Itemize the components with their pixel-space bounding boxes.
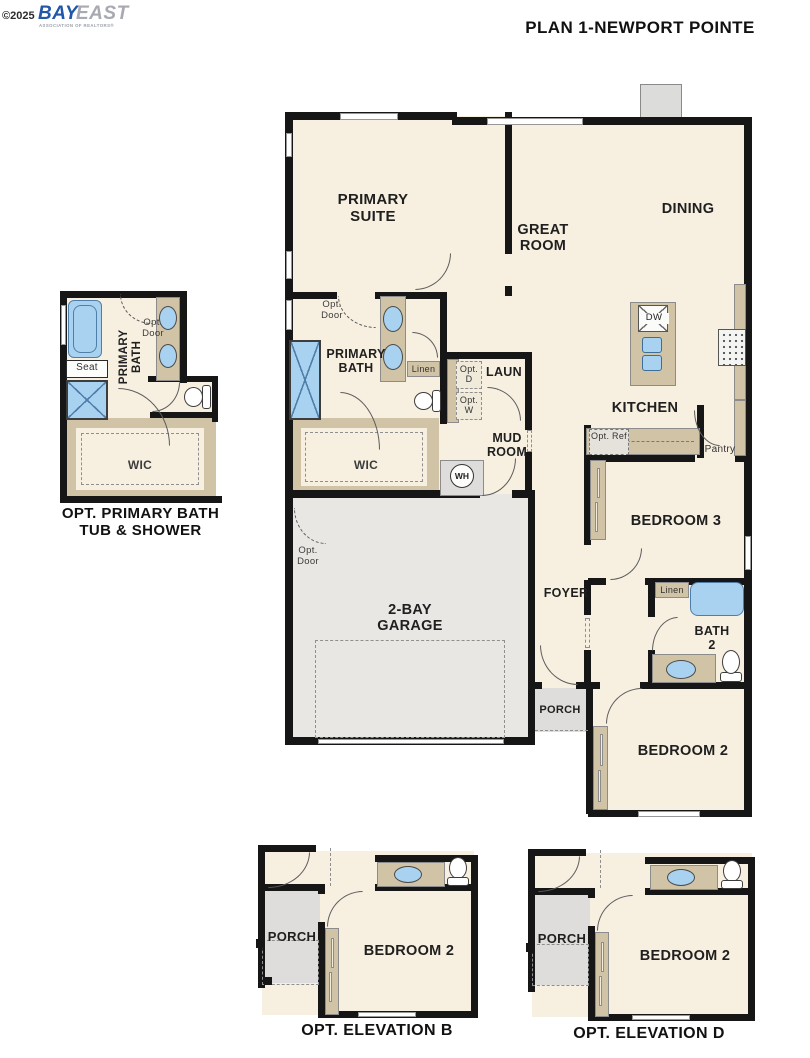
- linen2-label: Linen: [655, 585, 689, 595]
- elevb-porch-label: PORCH: [263, 930, 321, 945]
- kitchen-sink-1: [642, 337, 662, 353]
- window-suite-left-1: [286, 133, 292, 157]
- wall-kitchen-bed3-r: [735, 455, 752, 462]
- wall-bath2-left-a: [648, 583, 655, 617]
- bedroom2-label: BEDROOM 2: [633, 743, 733, 759]
- detail-shower: [66, 380, 108, 420]
- detail-opt-door-label: Opt. Door: [136, 318, 170, 339]
- brand-tagline: ASSOCIATION OF REALTORS®: [39, 24, 114, 28]
- bath2-tub: [690, 582, 744, 616]
- laun-label: LAUN: [480, 365, 528, 379]
- bedroom3-label: BEDROOM 3: [626, 513, 726, 529]
- window-suite-top: [340, 113, 398, 120]
- shower: [289, 340, 321, 420]
- kitchen-sink-2: [642, 355, 662, 371]
- detail-sink-2: [159, 344, 177, 368]
- opt-washer-label: Opt. W: [456, 395, 482, 415]
- elevd-wall-bed-stub: [588, 888, 595, 898]
- elevd-wall-right: [748, 857, 755, 1021]
- elevd-caption: OPT. ELEVATION D: [538, 1025, 760, 1043]
- garage-parking-dashed: [315, 640, 505, 738]
- wall-bath2-bed2-r: [640, 682, 752, 689]
- bath2-label: BATH 2: [692, 624, 732, 652]
- window-bath-left: [286, 300, 292, 330]
- elevb-sink: [394, 866, 422, 883]
- brand-bay: BAY: [38, 3, 78, 25]
- elevd-cutline: [600, 850, 602, 888]
- elevb-wall-top: [258, 845, 316, 852]
- bath2-sink: [666, 660, 696, 679]
- elevd-sink: [667, 869, 695, 886]
- floorplan-page: ©2025 BAY EAST ASSOCIATION OF REALTORS® …: [0, 0, 810, 1058]
- chimney: [640, 84, 682, 120]
- elevd-bedroom2-label: BEDROOM 2: [634, 948, 736, 964]
- elevd-wall-top: [528, 849, 586, 856]
- great-room-label: GREAT ROOM: [512, 222, 574, 254]
- wall-laun-right: [525, 352, 532, 430]
- elevb-window: [358, 1012, 416, 1017]
- garage-opt-door-label: Opt. Door: [290, 546, 326, 567]
- wic-label: WIC: [342, 459, 390, 472]
- primary-suite-label: PRIMARY SUITE: [318, 192, 428, 226]
- closet3-door-line2: [595, 502, 598, 532]
- closet2-door-line: [600, 734, 603, 766]
- elevb-cutline: [330, 848, 332, 886]
- closet3-door-line: [597, 468, 600, 498]
- bath-sink-1: [383, 306, 403, 332]
- wall-porch-top-r: [576, 682, 590, 689]
- closet2-door-line2: [598, 770, 601, 802]
- wall-suite-bottom-l: [285, 292, 337, 299]
- detail-wall-right-upper: [180, 291, 187, 383]
- porch-label: PORCH: [532, 704, 588, 716]
- window-bedroom2: [638, 811, 700, 817]
- detail-wall-bottom: [60, 496, 222, 503]
- elevb-wall-bed-stub: [318, 884, 325, 894]
- garage-label: 2-BAY GARAGE: [370, 602, 450, 634]
- garage-door-band: [318, 739, 504, 744]
- copyright-text: ©2025: [2, 10, 35, 22]
- detail-caption-line2: TUB & SHOWER: [48, 522, 233, 539]
- elevb-post-2: [264, 977, 272, 985]
- linen-label: Linen: [407, 364, 440, 374]
- pantry-label: Pantry: [698, 444, 742, 455]
- kitchen-label: KITCHEN: [600, 400, 690, 416]
- primary-bath-label: PRIMARY BATH: [320, 347, 392, 375]
- brand-logo: ©2025 BAY EAST ASSOCIATION OF REALTORS®: [2, 3, 172, 35]
- elevb-caption: OPT. ELEVATION B: [268, 1022, 486, 1040]
- elevb-closet-line: [331, 938, 334, 968]
- dining-label: DINING: [648, 201, 728, 217]
- wall-garage-right: [528, 490, 535, 695]
- wall-suite-right: [505, 112, 512, 254]
- window-suite-left-2: [286, 251, 292, 279]
- wh-label: WH: [455, 471, 469, 481]
- brand-east: EAST: [76, 3, 129, 25]
- water-heater: WH: [450, 464, 474, 488]
- detail-caption-line1: OPT. PRIMARY BATH: [48, 505, 233, 522]
- detail-tub: [68, 300, 102, 358]
- plan-title: PLAN 1-NEWPORT POINTE: [495, 18, 785, 38]
- detail-window: [61, 305, 66, 345]
- wall-laun-top: [440, 352, 532, 359]
- detail-seat-label: Seat: [66, 362, 108, 373]
- window-great-top: [487, 118, 583, 125]
- wall-suite-right-stub: [505, 286, 512, 296]
- opt-dryer-label: Opt. D: [456, 364, 482, 384]
- dash-foyer-opening: [585, 618, 590, 648]
- elevb-bedroom2-label: BEDROOM 2: [358, 943, 460, 959]
- dishwasher: DW: [638, 305, 668, 332]
- window-bedroom3: [745, 536, 751, 570]
- mud-room-label: MUD ROOM: [481, 431, 533, 459]
- dash-porch-edge: [535, 730, 588, 733]
- detail-wic-label: WIC: [116, 459, 164, 472]
- wall-bed3-bath2-stub: [588, 578, 606, 585]
- elevd-closet-line: [601, 942, 604, 972]
- dw-label: DW: [639, 313, 669, 324]
- elevd-window: [632, 1015, 690, 1020]
- stove: [718, 329, 746, 366]
- wall-left-garage: [285, 422, 293, 745]
- elevd-porch-label: PORCH: [533, 932, 591, 947]
- elevb-closet-line2: [329, 972, 332, 1002]
- wall-right: [744, 117, 752, 817]
- elevd-porch-dashed: [532, 944, 589, 986]
- elevd-closet-line2: [599, 976, 602, 1006]
- opt-ref-label: Opt. Ref: [589, 431, 629, 441]
- foyer-label: FOYER: [536, 586, 596, 600]
- elevb-wall-right: [471, 855, 478, 1018]
- suite-opt-door-label: Opt. Door: [314, 300, 350, 321]
